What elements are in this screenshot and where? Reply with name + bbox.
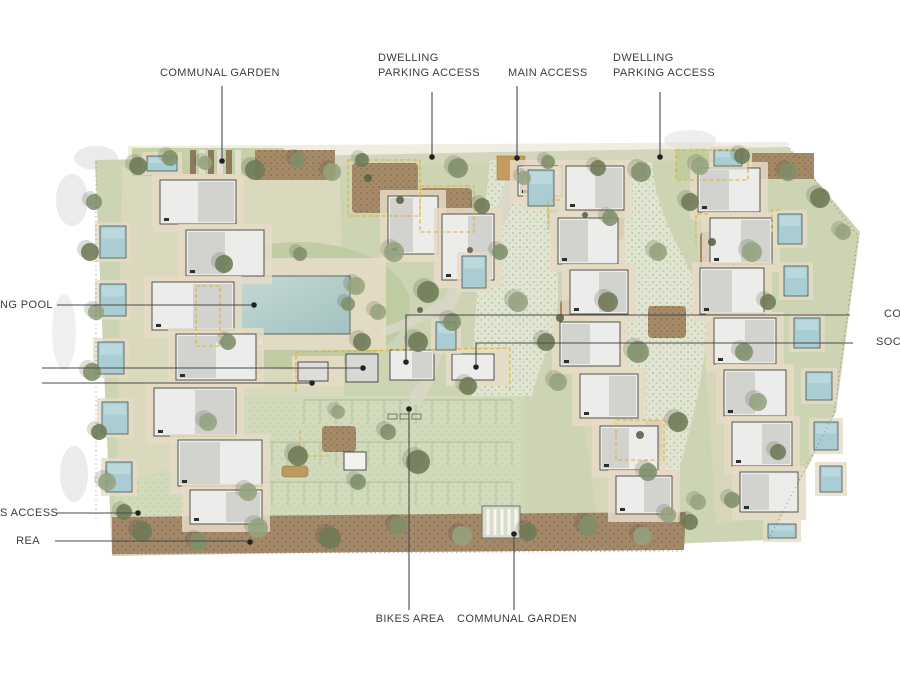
label-access-partial: S ACCESS — [0, 506, 48, 521]
dwelling-roof-section — [562, 324, 590, 364]
tree-canopy — [590, 160, 606, 176]
label-co-partial: CO — [884, 307, 900, 322]
label-communal-garden-top: COMMUNAL GARDEN — [160, 66, 280, 81]
tree-canopy — [749, 393, 767, 411]
label-main-access: MAIN ACCESS — [508, 66, 588, 81]
label-soc-partial: SOC — [876, 335, 900, 350]
tree-canopy — [810, 188, 830, 208]
tree-canopy — [734, 148, 750, 164]
tree-canopy — [408, 332, 428, 352]
tree-canopy — [245, 160, 265, 180]
utility-hut — [344, 452, 366, 470]
tree-canopy — [417, 307, 423, 313]
tree-canopy — [220, 334, 236, 350]
tree-canopy — [290, 152, 306, 168]
tree-canopy — [582, 212, 588, 218]
site-plan-canvas: COMMUNAL GARDEN DWELLING PARKING ACCESS … — [0, 0, 900, 675]
tree-canopy — [681, 193, 699, 211]
tree-canopy — [198, 156, 212, 170]
tree-canopy — [474, 198, 490, 214]
tree-canopy — [132, 522, 152, 542]
dwelling-roof-section — [180, 442, 220, 484]
tree-canopy — [735, 343, 753, 361]
tree-canopy — [682, 514, 698, 530]
tree-canopy — [350, 474, 366, 490]
tree-canopy — [708, 238, 716, 246]
label-dwelling-parking-access-right: DWELLING PARKING ACCESS — [613, 51, 715, 81]
tree-canopy — [319, 527, 341, 549]
dwelling-roof-section — [602, 428, 629, 468]
dwelling-roof-section — [609, 376, 636, 416]
tree-canopy — [467, 247, 473, 253]
tree-canopy — [406, 450, 430, 474]
tree-canopy — [86, 194, 102, 210]
tree-canopy — [331, 405, 345, 419]
tree-canopy — [341, 297, 355, 311]
tree-canopy — [189, 533, 207, 551]
tree-canopy — [598, 292, 618, 312]
tree-canopy — [636, 431, 644, 439]
tree-canopy — [323, 163, 341, 181]
tree-canopy — [639, 463, 657, 481]
tree-canopy — [370, 304, 386, 320]
label-area-partial: REA — [0, 534, 40, 549]
tree-canopy — [364, 174, 372, 182]
tree-canopy — [91, 424, 107, 440]
tree-canopy — [293, 247, 307, 261]
parked-car — [282, 466, 308, 477]
label-line: PARKING ACCESS — [613, 66, 715, 81]
tree-canopy — [508, 292, 528, 312]
tree-canopy — [537, 333, 555, 351]
tree-canopy — [459, 377, 477, 395]
tree-canopy — [355, 153, 369, 167]
tree-canopy — [541, 155, 555, 169]
tree-canopy — [668, 412, 688, 432]
tree-canopy — [347, 277, 365, 295]
tree-canopy — [83, 363, 101, 381]
tree-canopy — [380, 424, 396, 440]
tree-canopy — [248, 518, 268, 538]
tree-canopy — [492, 244, 508, 260]
dwelling-roof-section — [178, 336, 216, 378]
tree-canopy — [549, 373, 567, 391]
dwelling-roof-section — [560, 220, 588, 262]
tree-canopy — [384, 242, 404, 262]
tree-canopy — [631, 162, 651, 182]
label-line: DWELLING — [613, 51, 715, 66]
tree-canopy — [389, 517, 407, 535]
tree-canopy — [627, 341, 649, 363]
dwelling-roof-section — [742, 474, 769, 510]
tree-canopy — [417, 281, 439, 303]
tree-canopy — [116, 504, 132, 520]
site-plan-rendering — [0, 0, 900, 675]
tree-canopy — [519, 523, 537, 541]
tree-canopy — [288, 446, 308, 466]
label-swimming-pool-partial: NG POOL — [0, 298, 48, 313]
tree-canopy — [98, 473, 116, 491]
label-communal-garden-bottom: COMMUNAL GARDEN — [452, 612, 582, 627]
tree-canopy — [691, 157, 709, 175]
tree-canopy — [770, 444, 786, 460]
tree-canopy — [517, 171, 531, 185]
tree-canopy — [633, 527, 651, 545]
dwelling-roof-section — [198, 182, 234, 222]
tree-canopy — [779, 163, 797, 181]
label-line: PARKING ACCESS — [378, 66, 480, 81]
tree-canopy — [760, 294, 776, 310]
tree-canopy — [396, 196, 404, 204]
dwelling-roof-section — [702, 270, 732, 312]
tree-canopy — [578, 516, 598, 536]
label-line: DWELLING — [378, 51, 480, 66]
dwelling-roof-section — [700, 170, 729, 210]
tree-canopy — [724, 492, 740, 508]
dwelling-roof-section — [193, 284, 232, 328]
tree-canopy — [742, 242, 762, 262]
tree-canopy — [452, 526, 472, 546]
tree-canopy — [353, 333, 371, 351]
tree-canopy — [199, 413, 217, 431]
tree-canopy — [129, 157, 147, 175]
label-dwelling-parking-access-left: DWELLING PARKING ACCESS — [378, 51, 480, 81]
tree-canopy — [162, 150, 178, 166]
tree-canopy — [239, 483, 257, 501]
tree-canopy — [448, 158, 468, 178]
tree-canopy — [690, 494, 706, 510]
tree-canopy — [215, 255, 233, 273]
tree-canopy — [602, 210, 618, 226]
tree-canopy — [649, 243, 667, 261]
tree-canopy — [443, 313, 461, 331]
tree-canopy — [660, 507, 676, 523]
tree-canopy — [835, 224, 851, 240]
